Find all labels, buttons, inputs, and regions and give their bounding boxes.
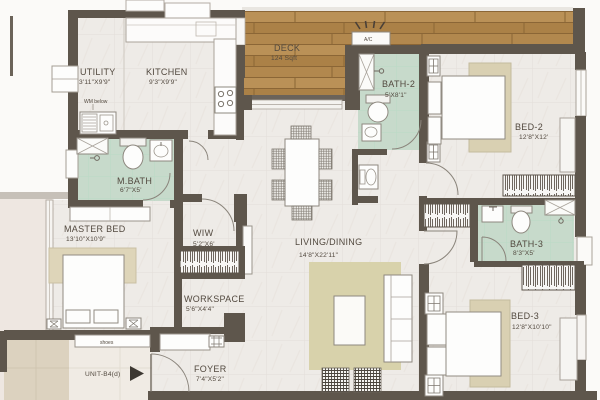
svg-text:A/C: A/C <box>364 37 373 43</box>
svg-text:BED-3: BED-3 <box>511 311 539 321</box>
svg-text:UTILITY: UTILITY <box>80 67 116 77</box>
svg-text:WORKSPACE: WORKSPACE <box>184 294 245 304</box>
svg-text:WM below: WM below <box>84 99 108 105</box>
svg-text:3'11"X9'9": 3'11"X9'9" <box>79 79 111 86</box>
svg-text:7'4"X5'2": 7'4"X5'2" <box>196 376 225 383</box>
svg-text:LIVING/DINING: LIVING/DINING <box>295 237 362 247</box>
svg-text:FOYER: FOYER <box>194 364 227 374</box>
svg-text:MASTER BED: MASTER BED <box>64 224 126 234</box>
svg-text:124 Sqft: 124 Sqft <box>271 55 297 62</box>
svg-text:5'X8'1": 5'X8'1" <box>385 92 407 99</box>
svg-text:12'8"X10'10": 12'8"X10'10" <box>512 324 552 331</box>
svg-text:M.BATH: M.BATH <box>117 176 152 186</box>
svg-text:12'8"X12': 12'8"X12' <box>519 134 548 141</box>
svg-text:BATH-2: BATH-2 <box>382 79 415 89</box>
svg-text:14'8"X22'11": 14'8"X22'11" <box>299 252 339 259</box>
svg-text:13'10"X10'9": 13'10"X10'9" <box>66 236 106 243</box>
svg-text:shoes: shoes <box>100 340 114 346</box>
svg-text:KITCHEN: KITCHEN <box>146 67 188 77</box>
svg-text:WIW: WIW <box>193 228 214 238</box>
svg-text:UNIT-B4(d): UNIT-B4(d) <box>85 371 120 378</box>
svg-text:BED-2: BED-2 <box>515 122 543 132</box>
svg-text:DECK: DECK <box>274 43 300 53</box>
svg-text:8'3"X5': 8'3"X5' <box>513 250 535 257</box>
svg-text:9'3"X9'9": 9'3"X9'9" <box>149 79 178 86</box>
svg-text:BATH-3: BATH-3 <box>510 239 543 249</box>
svg-text:5'6"X4'4": 5'6"X4'4" <box>186 306 215 313</box>
svg-text:6'7"X5': 6'7"X5' <box>120 187 142 194</box>
